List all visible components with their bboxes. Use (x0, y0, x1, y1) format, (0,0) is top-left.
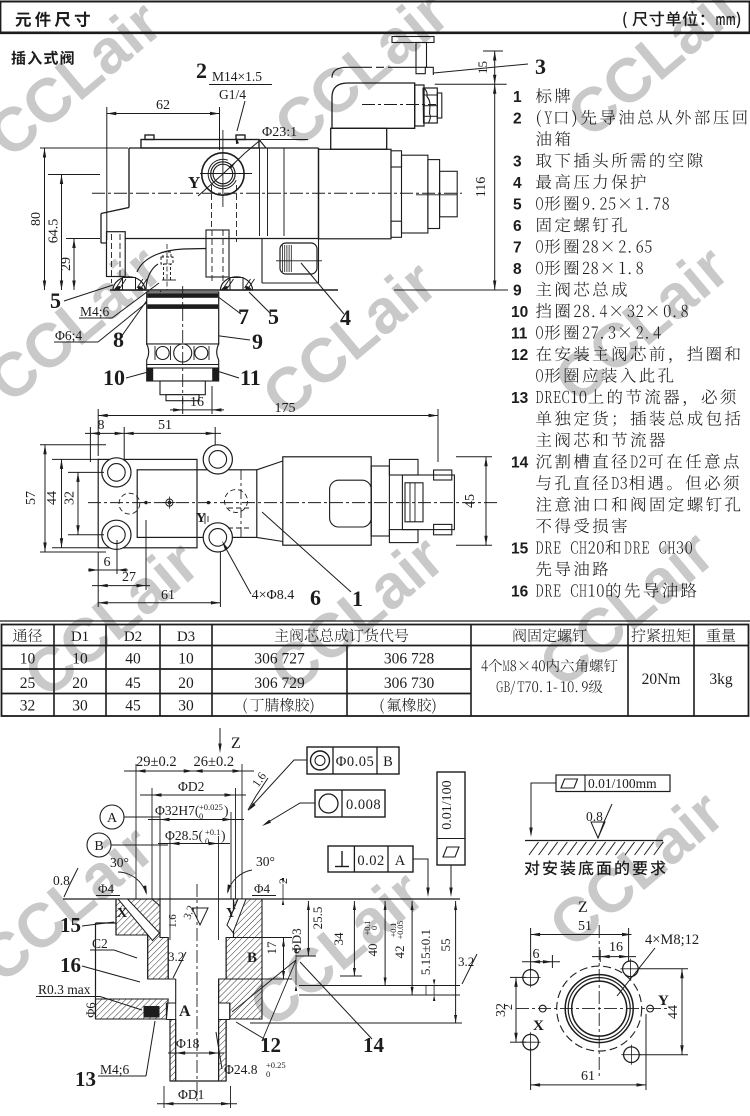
svg-text:30°: 30° (110, 855, 129, 870)
svg-text:55: 55 (438, 939, 453, 952)
svg-text:10: 10 (72, 651, 88, 668)
svg-text:M4;6: M4;6 (100, 1062, 130, 1077)
svg-text:64.5: 64.5 (47, 219, 62, 244)
svg-text:0: 0 (266, 1069, 270, 1079)
svg-text:7: 7 (513, 240, 522, 257)
svg-text:0: 0 (370, 926, 379, 930)
svg-text:25.5: 25.5 (310, 907, 325, 930)
svg-text:1: 1 (352, 586, 363, 611)
svg-text:57: 57 (24, 491, 39, 505)
svg-text:Φ28.5(: Φ28.5( (165, 828, 203, 843)
svg-text:5.15±0.1: 5.15±0.1 (418, 929, 433, 975)
svg-text:A: A (179, 1003, 191, 1020)
svg-text:A: A (107, 811, 118, 826)
svg-text:20: 20 (178, 675, 194, 692)
svg-text:X: X (533, 1018, 544, 1034)
svg-text:14: 14 (511, 455, 529, 472)
svg-text:10: 10 (178, 651, 194, 668)
svg-text:34: 34 (331, 932, 346, 946)
svg-text:30: 30 (72, 698, 88, 715)
svg-text:175: 175 (275, 401, 296, 416)
svg-text:16: 16 (190, 395, 204, 410)
svg-text:27: 27 (122, 570, 136, 585)
svg-text:D3: D3 (177, 629, 195, 645)
svg-text:32: 32 (494, 1003, 509, 1017)
svg-text:16: 16 (60, 953, 81, 977)
svg-text:Φ32H7(: Φ32H7( (155, 803, 200, 818)
svg-text:+0.05: +0.05 (396, 921, 405, 940)
svg-text:): ) (221, 828, 226, 843)
svg-text:): ) (224, 803, 229, 818)
svg-text:M4;6: M4;6 (80, 304, 110, 319)
svg-text:62: 62 (156, 98, 170, 113)
svg-text:16: 16 (511, 584, 529, 601)
svg-text:17: 17 (264, 941, 279, 955)
svg-text:Φ4: Φ4 (254, 881, 271, 896)
svg-text:Φ24.8: Φ24.8 (224, 1062, 258, 1077)
svg-text:8: 8 (513, 261, 522, 278)
svg-text:51: 51 (578, 919, 592, 934)
svg-text:D2: D2 (124, 629, 142, 645)
svg-text:0.8: 0.8 (53, 873, 70, 888)
svg-text:7: 7 (238, 304, 249, 329)
svg-text:8: 8 (98, 418, 105, 433)
svg-text:20Nm: 20Nm (642, 671, 681, 688)
svg-text:116: 116 (474, 177, 489, 197)
svg-text:Φ4: Φ4 (98, 881, 115, 896)
svg-text:Φ6: Φ6 (84, 1002, 98, 1017)
svg-text:10: 10 (511, 304, 528, 321)
svg-text:Z: Z (231, 735, 241, 752)
svg-text:6: 6 (310, 585, 321, 610)
svg-text:B: B (94, 839, 103, 854)
svg-text:Φ6;4: Φ6;4 (55, 328, 82, 343)
svg-text:0.02: 0.02 (357, 853, 384, 869)
svg-text:ΦD1: ΦD1 (178, 1087, 204, 1102)
svg-text:40: 40 (365, 944, 380, 957)
svg-text:3: 3 (535, 54, 546, 79)
svg-text:51: 51 (158, 418, 172, 433)
svg-text:B: B (383, 754, 393, 770)
svg-text:X: X (117, 906, 127, 921)
svg-text:0.01/100: 0.01/100 (440, 780, 455, 829)
svg-text:3.2: 3.2 (168, 949, 184, 964)
svg-text:4×Φ8.4: 4×Φ8.4 (252, 588, 295, 603)
svg-text:30: 30 (178, 698, 194, 715)
svg-text:1: 1 (513, 89, 522, 106)
svg-text:11: 11 (240, 365, 261, 390)
svg-text:Φ18: Φ18 (176, 1036, 200, 1051)
svg-text:0.01/100mm: 0.01/100mm (588, 776, 657, 791)
svg-text:M14×1.5: M14×1.5 (212, 69, 262, 84)
svg-text:3.2: 3.2 (458, 954, 474, 969)
svg-text:25: 25 (20, 675, 36, 692)
svg-text:4: 4 (340, 305, 351, 330)
svg-text:C2: C2 (92, 936, 108, 951)
svg-text:16: 16 (609, 940, 623, 955)
svg-text:306 728: 306 728 (384, 651, 435, 668)
svg-text:15: 15 (60, 913, 81, 937)
svg-text:5: 5 (513, 197, 522, 214)
svg-text:26±0.2: 26±0.2 (194, 754, 235, 770)
svg-text:12: 12 (260, 1033, 281, 1057)
svg-text:Y: Y (188, 173, 200, 192)
svg-text:306 730: 306 730 (384, 675, 435, 692)
svg-text:2: 2 (513, 111, 522, 128)
svg-text:5: 5 (268, 304, 279, 329)
svg-text:15: 15 (511, 541, 529, 558)
svg-text:44: 44 (45, 491, 60, 505)
svg-text:3kg: 3kg (709, 671, 733, 688)
svg-text:8: 8 (113, 327, 124, 352)
svg-text:Z: Z (578, 899, 588, 916)
svg-text:12: 12 (511, 347, 528, 364)
svg-text:9: 9 (513, 283, 522, 300)
svg-text:32: 32 (20, 698, 36, 715)
svg-text:29±0.2: 29±0.2 (136, 754, 177, 770)
svg-text:G1/4: G1/4 (219, 87, 246, 102)
svg-text:2: 2 (196, 58, 207, 83)
svg-text:0.008: 0.008 (346, 797, 381, 813)
svg-text:61: 61 (161, 588, 175, 603)
svg-text:3: 3 (513, 154, 522, 171)
svg-text:9: 9 (252, 329, 263, 354)
svg-text:14: 14 (363, 1033, 385, 1057)
svg-text:6: 6 (513, 218, 522, 235)
svg-text:11: 11 (511, 326, 528, 343)
svg-text:6: 6 (104, 555, 111, 570)
svg-text:30°: 30° (256, 854, 275, 869)
svg-text:Y: Y (226, 906, 236, 921)
svg-text:B: B (247, 950, 257, 966)
svg-text:44: 44 (666, 1005, 681, 1019)
svg-text:45: 45 (125, 675, 141, 692)
svg-text:42: 42 (392, 946, 407, 959)
svg-text:29: 29 (59, 257, 74, 271)
svg-text:306 729: 306 729 (254, 675, 305, 692)
svg-text:1.6: 1.6 (167, 914, 179, 928)
svg-text:306 727: 306 727 (254, 651, 305, 668)
svg-text:80: 80 (29, 212, 44, 226)
svg-text:Φ0.05: Φ0.05 (336, 754, 374, 770)
svg-text:61: 61 (581, 1069, 595, 1084)
svg-text:13: 13 (75, 1067, 96, 1091)
svg-text:45: 45 (125, 698, 141, 715)
svg-text:5: 5 (50, 288, 61, 313)
svg-text:10: 10 (20, 651, 36, 668)
svg-text:D1: D1 (71, 629, 89, 645)
svg-text:15: 15 (475, 61, 490, 74)
svg-text:20: 20 (72, 675, 88, 692)
svg-text:R0.3 max: R0.3 max (38, 982, 91, 997)
svg-text:45: 45 (463, 494, 478, 508)
svg-text:32: 32 (63, 491, 78, 505)
svg-text:40: 40 (125, 651, 141, 668)
svg-text:10: 10 (103, 365, 125, 390)
svg-text:A: A (395, 853, 406, 869)
svg-text:6: 6 (533, 947, 540, 962)
svg-text:4: 4 (513, 175, 522, 192)
svg-text:13: 13 (511, 390, 529, 407)
svg-text:ΦD2: ΦD2 (178, 779, 204, 794)
svg-text:Φ23:1: Φ23:1 (262, 125, 297, 140)
svg-text:4×M8;12: 4×M8;12 (645, 932, 699, 948)
